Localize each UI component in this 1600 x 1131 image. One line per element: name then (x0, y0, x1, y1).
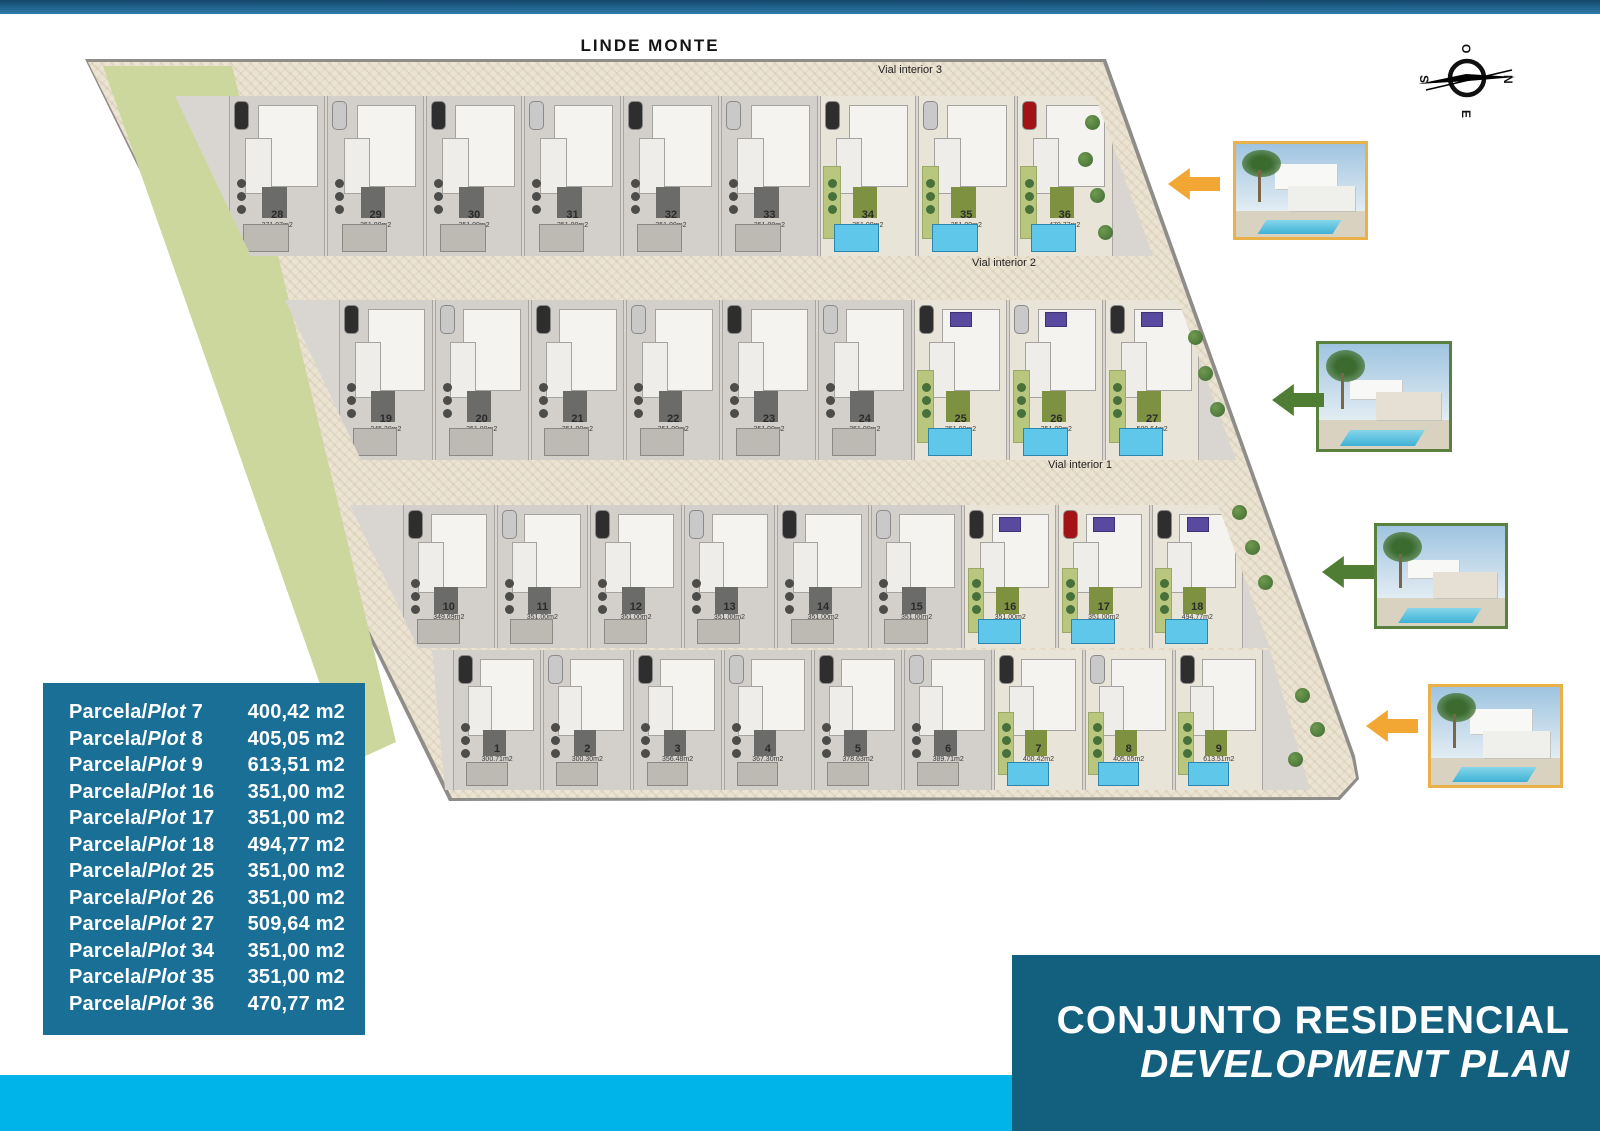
villa-photo-2 (1316, 341, 1452, 452)
legend-plot-label: Parcela/Plot 36 (69, 991, 214, 1018)
tree-icon (822, 723, 831, 732)
house-footprint-wing (468, 686, 492, 736)
car-icon (690, 511, 703, 538)
legend-row-plot-8: Parcela/Plot 8405,05 m2 (69, 726, 345, 753)
plot-32: 32351.00m2 (623, 96, 719, 256)
plot-17: 17351.00m2 (1058, 505, 1150, 648)
plot-number: 13 (685, 602, 775, 614)
plot-number: 28 (230, 210, 324, 222)
plot-1: 1300.71m2 (453, 650, 541, 790)
car-icon (639, 656, 652, 683)
plot-number: 7 (995, 744, 1081, 756)
tree-icon (631, 179, 640, 188)
legend-plot-area: 351,00 m2 (248, 964, 345, 991)
pool (737, 762, 779, 786)
car-icon (596, 511, 609, 538)
car-icon (537, 306, 550, 333)
house-footprint-wing (605, 542, 630, 593)
house-footprint-wing (512, 542, 537, 593)
house-footprint-wing (738, 686, 762, 736)
plot-19: 19345.38m2 (339, 300, 433, 460)
plot-7: 7400.42m2 (994, 650, 1082, 790)
car-icon (1091, 656, 1104, 683)
photo-pool (1340, 430, 1425, 446)
car-icon (549, 656, 562, 683)
car-icon (1064, 511, 1077, 538)
solar-panel-icon (999, 517, 1021, 532)
svg-text:O: O (1459, 44, 1473, 53)
plot-9: 9613.51m2 (1175, 650, 1263, 790)
plot-number: 9 (1176, 744, 1262, 756)
plot-number: 3 (634, 744, 720, 756)
legend-row-plot-16: Parcela/Plot 16351,00 m2 (69, 779, 345, 806)
pool (1165, 619, 1208, 644)
pool (640, 428, 684, 456)
plot-number: 6 (905, 744, 991, 756)
plot-number: 36 (1018, 210, 1112, 222)
pool (735, 224, 780, 252)
legend-plot-area: 405,05 m2 (248, 726, 345, 753)
plot-number: 14 (778, 602, 868, 614)
legend-plot-area: 351,00 m2 (248, 885, 345, 912)
plot-label: 8405.05m2 (1086, 744, 1172, 763)
house-footprint-wing (639, 138, 666, 194)
plot-5: 5378.63m2 (814, 650, 902, 790)
photo-villa-lower (1288, 186, 1355, 211)
plot-33: 33351.00m2 (721, 96, 817, 256)
house-footprint-wing (418, 542, 443, 593)
plot-number: 30 (427, 210, 521, 222)
tree-icon (1025, 179, 1034, 188)
legend-row-plot-9: Parcela/Plot 9613,51 m2 (69, 752, 345, 779)
pool (637, 224, 682, 252)
legend-rows: Parcela/Plot 7400,42 m2Parcela/Plot 8405… (69, 699, 345, 1017)
house-footprint-wing (355, 342, 381, 398)
plot-number: 35 (919, 210, 1013, 222)
legend-plot-label: Parcela/Plot 17 (69, 805, 214, 832)
plot-31: 31351.00m2 (524, 96, 620, 256)
legend-row-plot-26: Parcela/Plot 26351,00 m2 (69, 885, 345, 912)
plot-15: 15351.00m2 (871, 505, 963, 648)
plot-number: 19 (340, 414, 432, 426)
plot-35: 35351.00m2 (918, 96, 1014, 256)
car-icon (333, 102, 346, 129)
plot-number: 25 (915, 414, 1007, 426)
legend-row-plot-34: Parcela/Plot 34351,00 m2 (69, 938, 345, 965)
house-footprint-wing (699, 542, 724, 593)
plot-label: 7400.42m2 (995, 744, 1081, 763)
plot-26: 26351.00m2 (1009, 300, 1103, 460)
house-footprint-wing (738, 342, 764, 398)
plot-number: 31 (525, 210, 619, 222)
legend-row-plot-25: Parcela/Plot 25351,00 m2 (69, 858, 345, 885)
plot-34: 34351.00m2 (820, 96, 916, 256)
plot-label: 6389.71m2 (905, 744, 991, 763)
tree-icon (443, 383, 452, 392)
photo-pool (1452, 767, 1536, 782)
car-icon (970, 511, 983, 538)
plot-23: 23351.00m2 (722, 300, 816, 460)
car-icon (503, 511, 516, 538)
palm-tree-icon (1326, 350, 1365, 382)
road-label-vial-1: Vial interior 1 (1048, 459, 1112, 471)
car-icon (824, 306, 837, 333)
plot-label: 1300.71m2 (454, 744, 540, 763)
plot-27: 27509.64m2 (1105, 300, 1199, 460)
plot-22: 22351.00m2 (626, 300, 720, 460)
pool (834, 224, 879, 252)
pool (1071, 619, 1114, 644)
solar-panel-icon (1045, 312, 1067, 327)
plot-number: 12 (591, 602, 681, 614)
legend-plot-label: Parcela/Plot 27 (69, 911, 214, 938)
tree-icon (1210, 402, 1225, 417)
tree-icon (1078, 152, 1093, 167)
tree-icon (692, 579, 701, 588)
pool (417, 619, 460, 644)
plot-number: 26 (1010, 414, 1102, 426)
pool (791, 619, 834, 644)
plot-number: 22 (627, 414, 719, 426)
tree-icon (1198, 366, 1213, 381)
car-icon (432, 102, 445, 129)
arrow-left-icon (1168, 168, 1220, 200)
car-icon (910, 656, 923, 683)
car-icon (727, 102, 740, 129)
legend-plot-label: Parcela/Plot 7 (69, 699, 203, 726)
legend-row-plot-17: Parcela/Plot 17351,00 m2 (69, 805, 345, 832)
tree-icon (461, 723, 470, 732)
car-icon (459, 656, 472, 683)
legend-row-plot-18: Parcela/Plot 18494,77 m2 (69, 832, 345, 859)
villa-photo-3 (1374, 523, 1508, 629)
tree-icon (1085, 115, 1100, 130)
pool (510, 619, 553, 644)
tree-icon (1245, 540, 1260, 555)
legend-plot-area: 509,64 m2 (248, 911, 345, 938)
svg-text:S: S (1417, 75, 1431, 83)
car-icon (629, 102, 642, 129)
pool (243, 224, 288, 252)
tree-icon (539, 383, 548, 392)
car-icon (826, 102, 839, 129)
house-footprint-wing (540, 138, 567, 194)
legend-plot-area: 400,42 m2 (248, 699, 345, 726)
car-icon (783, 511, 796, 538)
house-footprint-wing (886, 542, 911, 593)
arrow-left-icon (1322, 556, 1374, 588)
house-footprint-wing (642, 342, 668, 398)
pool (647, 762, 689, 786)
plot-24: 24351.00m2 (818, 300, 912, 460)
tree-icon (732, 723, 741, 732)
car-icon (1023, 102, 1036, 129)
pool (353, 428, 397, 456)
villa-photo-1 (1233, 141, 1368, 240)
legend-row-plot-27: Parcela/Plot 27509,64 m2 (69, 911, 345, 938)
legend-plot-label: Parcela/Plot 25 (69, 858, 214, 885)
plot-number: 21 (532, 414, 624, 426)
legend-table: Parcela/Plot 7400,42 m2Parcela/Plot 8405… (43, 683, 365, 1035)
legend-plot-label: Parcela/Plot 35 (69, 964, 214, 991)
house-footprint-wing (442, 138, 469, 194)
tree-icon (1258, 575, 1273, 590)
car-icon (877, 511, 890, 538)
legend-plot-area: 351,00 m2 (248, 858, 345, 885)
plot-row-10-18: 10349.69m211351.00m212351.00m213351.00m2… (340, 505, 1290, 648)
legend-plot-area: 613,51 m2 (248, 752, 345, 779)
pool (932, 224, 977, 252)
legend-plot-label: Parcela/Plot 18 (69, 832, 214, 859)
banner-title-en: DEVELOPMENT PLAN (1140, 1043, 1570, 1087)
legend-plot-label: Parcela/Plot 16 (69, 779, 214, 806)
plot-number: 18 (1153, 602, 1243, 614)
road-label-vial-3: Vial interior 3 (878, 64, 942, 76)
house-footprint-wing (793, 542, 818, 593)
pool (544, 428, 588, 456)
tree-icon (1288, 752, 1303, 767)
plot-4: 4367.30m2 (724, 650, 812, 790)
legend-row-plot-35: Parcela/Plot 35351,00 m2 (69, 964, 345, 991)
legend-plot-area: 351,00 m2 (248, 938, 345, 965)
plot-number: 5 (815, 744, 901, 756)
pool (466, 762, 508, 786)
tree-icon (551, 723, 560, 732)
car-icon (235, 102, 248, 129)
plot-number: 27 (1106, 414, 1198, 426)
tree-icon (1093, 723, 1102, 732)
banner-title-es: CONJUNTO RESIDENCIAL (1057, 999, 1570, 1043)
photo-pool (1398, 608, 1482, 623)
plot-25: 25351.00m2 (914, 300, 1008, 460)
pool (1188, 762, 1230, 786)
pool (1031, 224, 1076, 252)
solar-panel-icon (1187, 517, 1209, 532)
legend-plot-label: Parcela/Plot 26 (69, 885, 214, 912)
pool (1119, 428, 1163, 456)
plot-12: 12351.00m2 (590, 505, 682, 648)
plot-11: 11351.00m2 (497, 505, 589, 648)
pool (1023, 428, 1067, 456)
plot-number: 17 (1059, 602, 1149, 614)
house-footprint-wing (829, 686, 853, 736)
car-icon (409, 511, 422, 538)
car-icon (1111, 306, 1124, 333)
top-blue-bar (0, 0, 1600, 14)
plot-number: 33 (722, 210, 816, 222)
solar-panel-icon (1093, 517, 1115, 532)
palm-tree-icon (1383, 532, 1421, 562)
pool (440, 224, 485, 252)
plot-number: 11 (498, 602, 588, 614)
plot-number: 4 (725, 744, 811, 756)
compass-rose-icon: O N E S (1412, 28, 1522, 128)
legend-plot-label: Parcela/Plot 34 (69, 938, 214, 965)
legend-plot-area: 351,00 m2 (248, 805, 345, 832)
car-icon (820, 656, 833, 683)
pool (917, 762, 959, 786)
legend-row-plot-7: Parcela/Plot 7400,42 m2 (69, 699, 345, 726)
plot-number: 1 (454, 744, 540, 756)
palm-trunk (1399, 554, 1402, 588)
car-icon (441, 306, 454, 333)
house-footprint-wing (344, 138, 371, 194)
plot-number: 8 (1086, 744, 1172, 756)
plot-number: 16 (965, 602, 1055, 614)
plot-3: 3356.48m2 (633, 650, 721, 790)
pool (539, 224, 584, 252)
photo-villa-lower (1376, 392, 1441, 419)
tree-icon (1232, 505, 1247, 520)
house-footprint-wing (834, 342, 860, 398)
house-footprint-wing (546, 342, 572, 398)
palm-trunk (1258, 170, 1261, 202)
pool (556, 762, 598, 786)
pool (342, 224, 387, 252)
pool (928, 428, 972, 456)
development-plan-page: LINDE MONTE Vial interior 3 Vial interio… (0, 0, 1600, 1131)
plot-number: 2 (544, 744, 630, 756)
plot-row-28-36: 28371.97m229351.00m230351.00m231351.00m2… (170, 96, 1160, 256)
photo-pool (1257, 220, 1341, 234)
villa-photo-4 (1428, 684, 1563, 788)
pool (1098, 762, 1140, 786)
plot-number: 32 (624, 210, 718, 222)
plot-number: 34 (821, 210, 915, 222)
legend-plot-area: 470,77 m2 (248, 991, 345, 1018)
car-icon (920, 306, 933, 333)
pool (832, 428, 876, 456)
tree-icon (1310, 722, 1325, 737)
tree-icon (1098, 225, 1113, 240)
car-icon (1000, 656, 1013, 683)
tree-icon (1090, 188, 1105, 203)
plot-16: 16351.00m2 (964, 505, 1056, 648)
pool (978, 619, 1021, 644)
pool (736, 428, 780, 456)
plot-label: 4367.30m2 (725, 744, 811, 763)
tree-icon (922, 383, 931, 392)
palm-trunk (1341, 373, 1344, 409)
car-icon (730, 656, 743, 683)
car-icon (530, 102, 543, 129)
car-icon (1181, 656, 1194, 683)
tree-icon (828, 179, 837, 188)
plot-10: 10349.69m2 (403, 505, 495, 648)
legend-plot-area: 351,00 m2 (248, 779, 345, 806)
bottom-cyan-bar (0, 1075, 1013, 1131)
plot-30: 30351.00m2 (426, 96, 522, 256)
pool (884, 619, 927, 644)
photo-villa-lower (1433, 572, 1497, 598)
plot-20: 20351.00m2 (435, 300, 529, 460)
pool (604, 619, 647, 644)
plot-number: 10 (404, 602, 494, 614)
plot-number: 15 (872, 602, 962, 614)
tree-icon (1295, 688, 1310, 703)
tree-icon (912, 723, 921, 732)
plot-number: 29 (328, 210, 422, 222)
legend-row-plot-36: Parcela/Plot 36470,77 m2 (69, 991, 345, 1018)
plot-6: 6389.71m2 (904, 650, 992, 790)
car-icon (632, 306, 645, 333)
svg-text:N: N (1501, 75, 1515, 84)
solar-panel-icon (950, 312, 972, 327)
arrow-left-icon (1366, 710, 1418, 742)
street-name: LINDE MONTE (520, 36, 780, 56)
plot-label: 3356.48m2 (634, 744, 720, 763)
plot-13: 13351.00m2 (684, 505, 776, 648)
tree-icon (1183, 723, 1192, 732)
house-footprint-wing (919, 686, 943, 736)
car-icon (1015, 306, 1028, 333)
tree-icon (434, 179, 443, 188)
pool (827, 762, 869, 786)
plot-number: 24 (819, 414, 911, 426)
house-footprint-wing (737, 138, 764, 194)
solar-panel-icon (1141, 312, 1163, 327)
plot-number: 20 (436, 414, 528, 426)
plot-label: 2300.30m2 (544, 744, 630, 763)
palm-trunk (1453, 714, 1456, 747)
house-footprint-wing (648, 686, 672, 736)
title-banner: CONJUNTO RESIDENCIAL DEVELOPMENT PLAN (1012, 955, 1600, 1131)
car-icon (728, 306, 741, 333)
pool (1007, 762, 1049, 786)
plot-21: 21351.00m2 (531, 300, 625, 460)
plot-label: 9613.51m2 (1176, 744, 1262, 763)
legend-plot-label: Parcela/Plot 8 (69, 726, 203, 753)
pool (697, 619, 740, 644)
house-footprint-wing (450, 342, 476, 398)
legend-plot-area: 494,77 m2 (248, 832, 345, 859)
photo-villa-lower (1483, 731, 1550, 757)
road-label-vial-2: Vial interior 2 (972, 257, 1036, 269)
house-footprint-wing (245, 138, 272, 194)
pool (449, 428, 493, 456)
svg-text:E: E (1459, 110, 1473, 118)
car-icon (924, 102, 937, 129)
legend-plot-label: Parcela/Plot 9 (69, 752, 203, 779)
plot-8: 8405.05m2 (1085, 650, 1173, 790)
car-icon (1158, 511, 1171, 538)
plot-2: 2300.30m2 (543, 650, 631, 790)
plot-28: 28371.97m2 (229, 96, 325, 256)
plot-row-19-27: 19345.38m220351.00m221351.00m222351.00m2… (270, 300, 1250, 460)
tree-icon (1160, 579, 1169, 588)
plot-number: 23 (723, 414, 815, 426)
tree-icon (1188, 330, 1203, 345)
house-footprint-wing (558, 686, 582, 736)
plot-label: 5378.63m2 (815, 744, 901, 763)
plot-row-1-9: 1300.71m22300.30m23356.48m24367.30m25378… (420, 650, 1320, 790)
tree-icon (505, 579, 514, 588)
plot-14: 14351.00m2 (777, 505, 869, 648)
car-icon (345, 306, 358, 333)
plot-29: 29351.00m2 (327, 96, 423, 256)
